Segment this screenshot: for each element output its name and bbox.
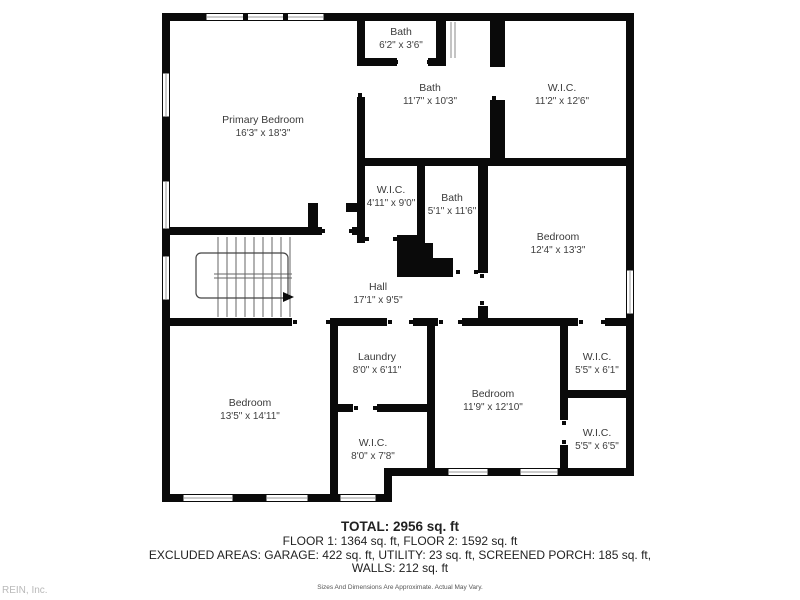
room-label-wic-bottom-middle: W.I.C. 8'0" x 7'8": [351, 437, 395, 463]
room-name: Bath: [428, 192, 477, 205]
room-label-bedroom-bottom-right: Bedroom 11'9" x 12'10": [463, 388, 523, 414]
room-dims: 8'0" x 7'8": [351, 450, 395, 463]
room-label-wic-top-right: W.I.C. 11'2" x 12'6": [535, 82, 589, 108]
area-summary: TOTAL: 2956 sq. ft FLOOR 1: 1364 sq. ft,…: [0, 519, 800, 591]
room-label-bedroom-right: Bedroom 12'4" x 13'3": [531, 231, 586, 257]
room-dims: 16'3" x 18'3": [222, 127, 304, 140]
room-label-laundry: Laundry 8'0" x 6'11": [353, 351, 402, 377]
room-dims: 4'11" x 9'0": [367, 197, 416, 210]
room-name: W.I.C.: [535, 82, 589, 95]
room-name: Bedroom: [531, 231, 586, 244]
room-label-primary-bedroom: Primary Bedroom 16'3" x 18'3": [222, 114, 304, 140]
room-dims: 17'1" x 9'5": [353, 294, 402, 307]
total-area-text: TOTAL: 2956 sq. ft: [0, 519, 800, 535]
room-name: Primary Bedroom: [222, 114, 304, 127]
staircase-icon: [196, 237, 294, 317]
room-label-wic-right-lower: W.I.C. 5'5" x 6'5": [575, 427, 619, 453]
room-label-bath-middle: Bath 5'1" x 11'6": [428, 192, 477, 218]
room-label-hall: Hall 17'1" x 9'5": [353, 281, 402, 307]
room-label-wic-middle: W.I.C. 4'11" x 9'0": [367, 184, 416, 210]
room-dims: 12'4" x 13'3": [531, 244, 586, 257]
room-dims: 11'9" x 12'10": [463, 401, 523, 414]
room-name: Bedroom: [220, 397, 280, 410]
room-dims: 13'5" x 14'11": [220, 410, 280, 423]
room-name: Hall: [353, 281, 402, 294]
room-name: W.I.C.: [575, 427, 619, 440]
floorplan-page: Primary Bedroom 16'3" x 18'3" Bath 6'2" …: [0, 0, 800, 600]
disclaimer-text: Sizes And Dimensions Are Approximate. Ac…: [0, 584, 800, 591]
floor-areas-text: FLOOR 1: 1364 sq. ft, FLOOR 2: 1592 sq. …: [0, 535, 800, 549]
room-label-bedroom-bottom-left: Bedroom 13'5" x 14'11": [220, 397, 280, 423]
walls-area-text: WALLS: 212 sq. ft: [0, 562, 800, 576]
room-label-bath-top: Bath 6'2" x 3'6": [379, 26, 423, 52]
room-dims: 6'2" x 3'6": [379, 39, 423, 52]
excluded-areas-text: EXCLUDED AREAS: GARAGE: 422 sq. ft, UTIL…: [0, 549, 800, 563]
room-dims: 11'2" x 12'6": [535, 95, 589, 108]
room-name: W.I.C.: [367, 184, 416, 197]
room-label-wic-right-upper: W.I.C. 5'5" x 6'1": [575, 351, 619, 377]
shower-glass: [451, 22, 455, 58]
room-name: Laundry: [353, 351, 402, 364]
room-label-bath-primary: Bath 11'7" x 10'3": [403, 82, 457, 108]
room-dims: 5'5" x 6'1": [575, 364, 619, 377]
room-name: Bath: [403, 82, 457, 95]
room-name: W.I.C.: [351, 437, 395, 450]
watermark-text: REIN, Inc.: [2, 585, 48, 596]
room-name: Bath: [379, 26, 423, 39]
room-dims: 8'0" x 6'11": [353, 364, 402, 377]
room-dims: 5'5" x 6'5": [575, 440, 619, 453]
room-dims: 11'7" x 10'3": [403, 95, 457, 108]
room-dims: 5'1" x 11'6": [428, 205, 477, 218]
room-name: Bedroom: [463, 388, 523, 401]
room-name: W.I.C.: [575, 351, 619, 364]
